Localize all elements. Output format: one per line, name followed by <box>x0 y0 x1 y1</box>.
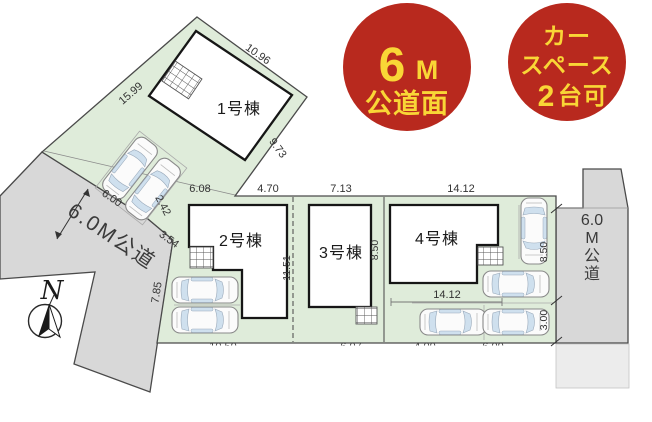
road-right-label-line4: 道 <box>584 265 600 283</box>
dim-top-2: 4.70 <box>257 183 278 195</box>
car-space-badge: カー スペース 2 台可 <box>508 3 626 121</box>
north-label: N <box>40 276 65 306</box>
car <box>420 309 486 335</box>
badge-car-line1: カー <box>543 23 591 49</box>
road-right-label-line3: 公 <box>584 248 600 265</box>
badge-car-suffix: 台可 <box>558 82 608 110</box>
porch-3 <box>356 307 377 324</box>
road-right-label-line2: M <box>585 230 598 247</box>
badge-road-number: 6 <box>379 39 406 92</box>
badge-car-line2: スペース <box>520 52 613 78</box>
road-frontage-badge: 6 M 公道面 <box>343 3 471 131</box>
car <box>172 277 238 303</box>
dim-right-upper: 8.50 <box>538 242 550 263</box>
building-2-label: 2号棟 <box>219 232 263 250</box>
site-plan-drawing: 1号棟 2号棟 3号棟 4号棟 10.96 15.99 9.73 6.00 2.… <box>0 0 652 422</box>
dim-top-3: 7.13 <box>330 183 351 195</box>
car <box>172 307 238 333</box>
dim-mid-depth: 11.51 <box>281 255 293 281</box>
dim-right-lower: 3.00 <box>538 310 550 331</box>
road-right-extension <box>556 344 629 388</box>
road-right-label-line1: 6.0 <box>581 212 603 229</box>
badge-car-count: 2 <box>538 80 555 113</box>
dim-lot34-depth: 8.50 <box>369 240 381 261</box>
road-right-label: 6.0 M 公 道 <box>581 212 603 283</box>
porch-4 <box>478 247 503 265</box>
badge-road-unit: M <box>416 55 439 85</box>
building-3-label: 3号棟 <box>319 244 363 262</box>
building-1-label: 1号棟 <box>217 100 261 118</box>
dim-top-1: 6.08 <box>189 183 210 195</box>
building-4-label: 4号棟 <box>415 230 459 248</box>
dim-lot4-bottom: 14.12 <box>433 289 461 301</box>
badge-road-line2: 公道面 <box>365 88 449 119</box>
porch-2 <box>190 247 213 268</box>
car <box>483 271 549 297</box>
site-plan-page: 1号棟 2号棟 3号棟 4号棟 10.96 15.99 9.73 6.00 2.… <box>0 0 652 422</box>
dim-top-4: 14.12 <box>447 183 475 195</box>
